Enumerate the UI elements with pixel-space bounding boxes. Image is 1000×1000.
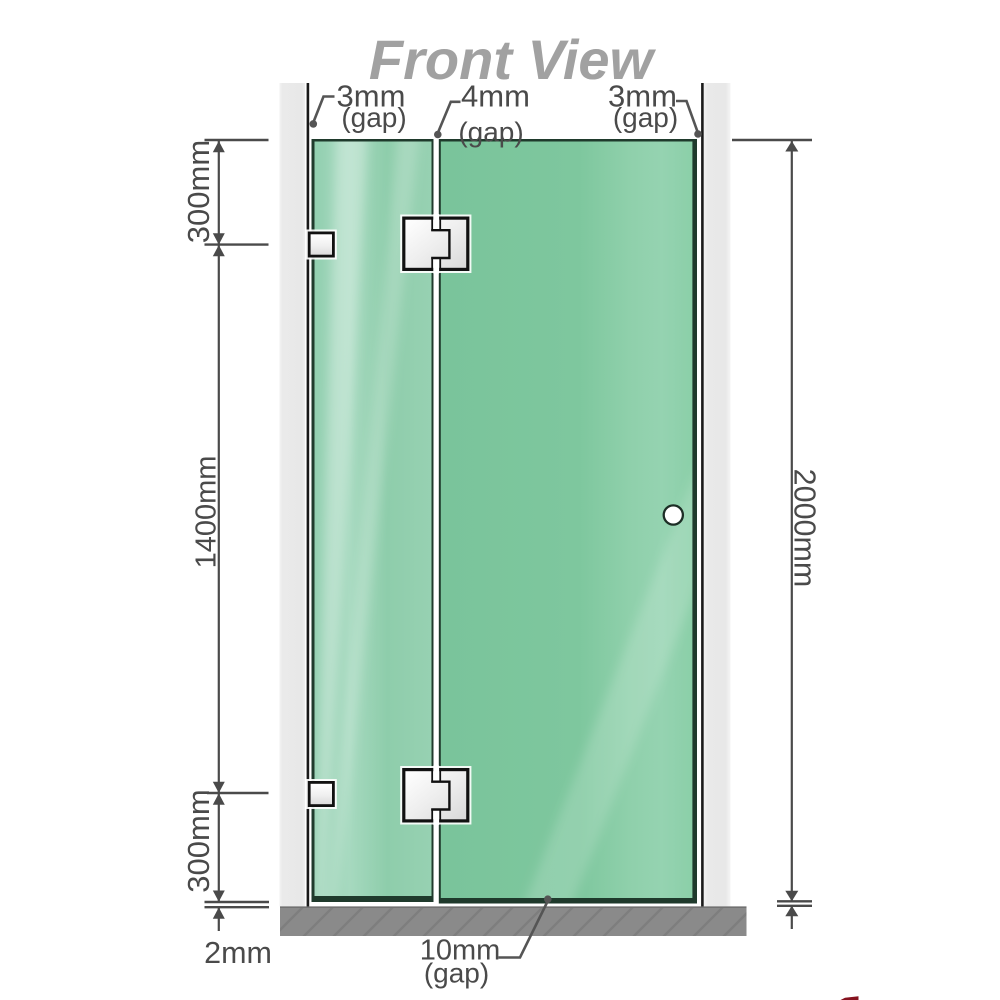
svg-text:(gap): (gap) (613, 102, 678, 133)
svg-text:300mm: 300mm (181, 789, 216, 892)
svg-text:2000mm: 2000mm (788, 469, 822, 588)
svg-text:300mm: 300mm (181, 140, 216, 243)
svg-text:(gap): (gap) (458, 117, 523, 148)
svg-text:2mm: 2mm (204, 936, 272, 970)
svg-text:4mm: 4mm (461, 79, 530, 114)
svg-text:(gap): (gap) (424, 958, 489, 989)
svg-text:1400mm: 1400mm (191, 456, 223, 569)
svg-text:(gap): (gap) (341, 102, 406, 133)
